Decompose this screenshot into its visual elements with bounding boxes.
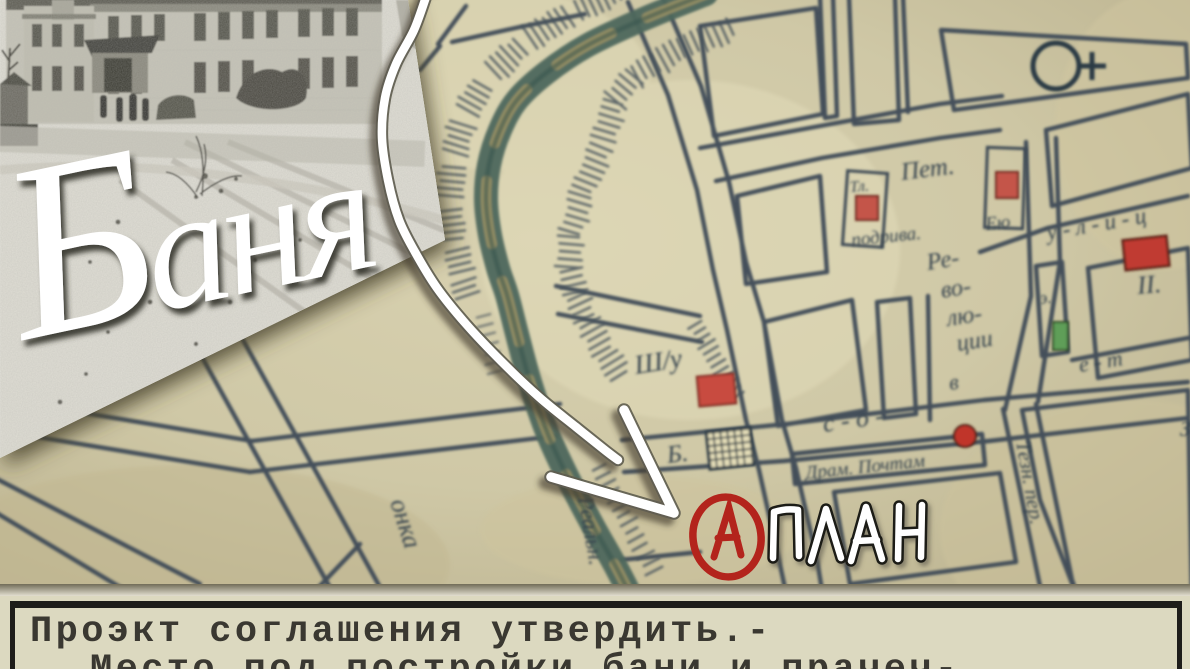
svg-text:Б.: Б. xyxy=(664,440,689,469)
svg-text:ции: ции xyxy=(955,326,995,357)
svg-text:Ею: Ею xyxy=(983,211,1011,235)
svg-text:Тл.: Тл. xyxy=(849,178,869,196)
svg-text:во-: во- xyxy=(939,274,973,304)
svg-text:II.: II. xyxy=(1135,269,1162,300)
svg-text:Место под постройки бани и пра: Место под постройки бани и прачеч- xyxy=(90,649,961,669)
svg-text:Проэкт соглашения утвердить.-: Проэкт соглашения утвердить.- xyxy=(30,611,773,653)
svg-text:З: З xyxy=(1180,416,1190,441)
svg-text:Ре-: Ре- xyxy=(924,245,961,276)
svg-text:э.: э. xyxy=(1038,287,1052,308)
